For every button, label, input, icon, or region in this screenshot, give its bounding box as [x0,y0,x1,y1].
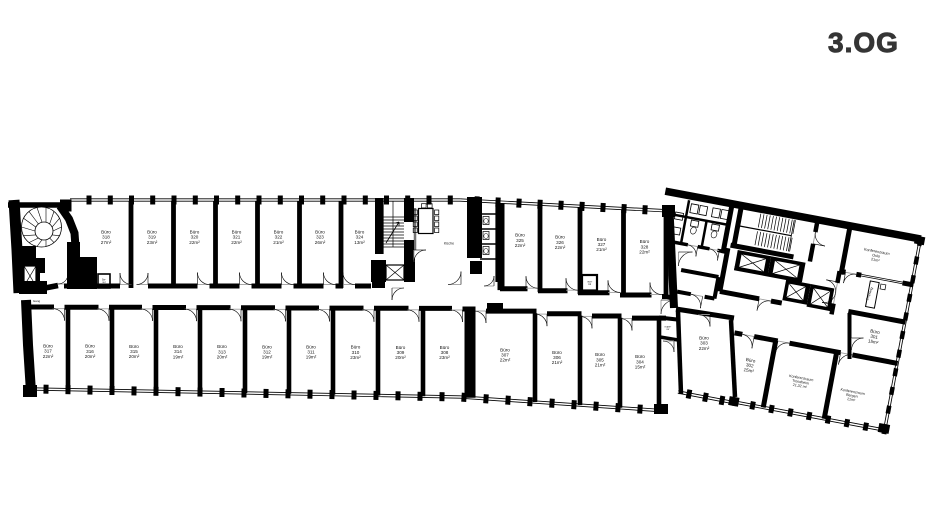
svg-text:Küche: Küche [444,241,454,245]
svg-text:3.OG: 3.OG [828,27,899,58]
svg-text:Gang: Gang [33,299,41,303]
